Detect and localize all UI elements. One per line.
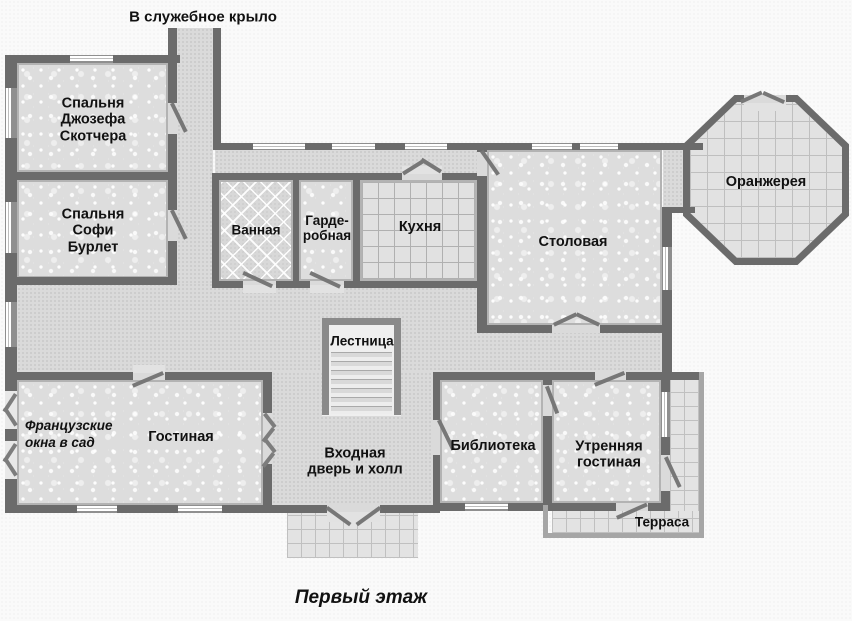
window [661,392,670,437]
label-morning-room: Утренняя гостиная [575,439,642,472]
window [580,143,618,150]
wall-bedroom-right [168,28,177,285]
window [332,143,375,150]
wall-bath-block-top [212,173,487,180]
label-library: Библиотека [450,438,535,454]
window [5,88,17,138]
label-dining: Столовая [538,234,607,250]
label-wardrobe: Гарде- робная [303,213,351,244]
label-orangery: Оранжерея [726,174,807,190]
label-french-windows: Французские окна в сад [25,418,112,452]
wall-bath-block-left [212,173,219,288]
wall-passage-bottom [662,207,695,213]
stairs-wall-left [322,318,329,415]
wall-bath-wardrobe-divider [293,180,299,281]
window [532,143,572,150]
service-corridor-floor [177,28,213,283]
wall-bedroom-divider [17,172,168,180]
door-opening [552,325,600,333]
terrace-wall-left [543,505,548,538]
door-opening [402,173,442,180]
stairs-wall-top [322,318,401,325]
window [178,505,222,513]
window [77,505,117,513]
label-stairs: Лестница [330,333,393,348]
window [465,503,508,511]
label-bathroom: Ванная [232,222,281,237]
label-entrance: Входная дверь и холл [307,446,402,479]
label-kitchen: Кухня [399,219,441,235]
wall-corridor-right [213,28,221,150]
window [253,143,305,150]
label-terrace: Терраса [635,514,689,529]
stairs-wall-right [394,318,401,415]
window [405,143,447,150]
label-living: Гостиная [148,429,214,445]
window [662,247,672,290]
label-service-wing: В служебное крыло [129,9,277,26]
door-threshold [744,103,786,111]
label-bedroom-burlet: Спальня Софи Бурлет [62,206,125,255]
label-bedroom-scotcher: Спальня Джозефа Скотчера [60,95,127,144]
window [70,55,113,63]
upper-corridor-floor [215,150,487,175]
terrace-wall-right [699,372,704,538]
stairs-steps [331,352,392,414]
wall-bedroom-bottom [5,277,177,285]
window [5,202,17,253]
wall-dining-right [662,207,672,378]
plan-caption: Первый этаж [295,587,427,609]
wall-wardrobe-kitchen-divider [353,180,360,281]
window [5,302,17,347]
terrace-wall-bottom [543,533,704,538]
floor-plan: В служебное крыло Спальня Джозефа Скотче… [0,0,852,621]
